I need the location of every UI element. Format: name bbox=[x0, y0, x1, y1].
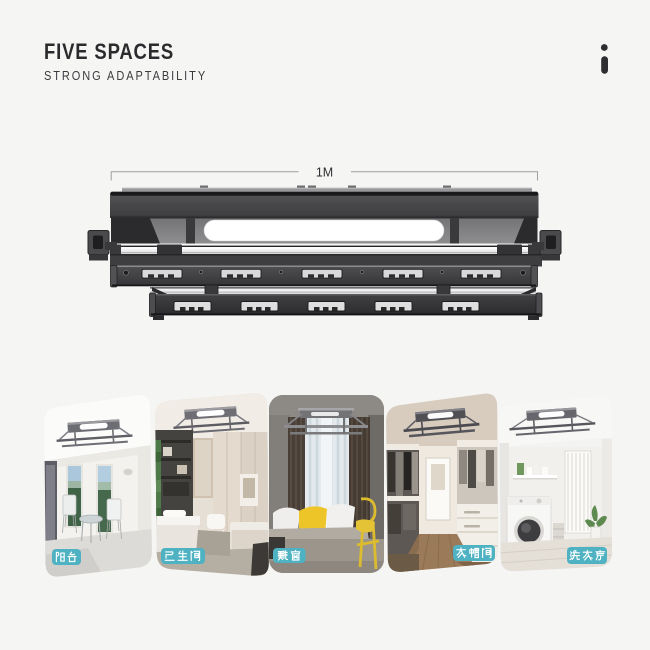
svg-text:1M: 1M bbox=[316, 166, 333, 180]
